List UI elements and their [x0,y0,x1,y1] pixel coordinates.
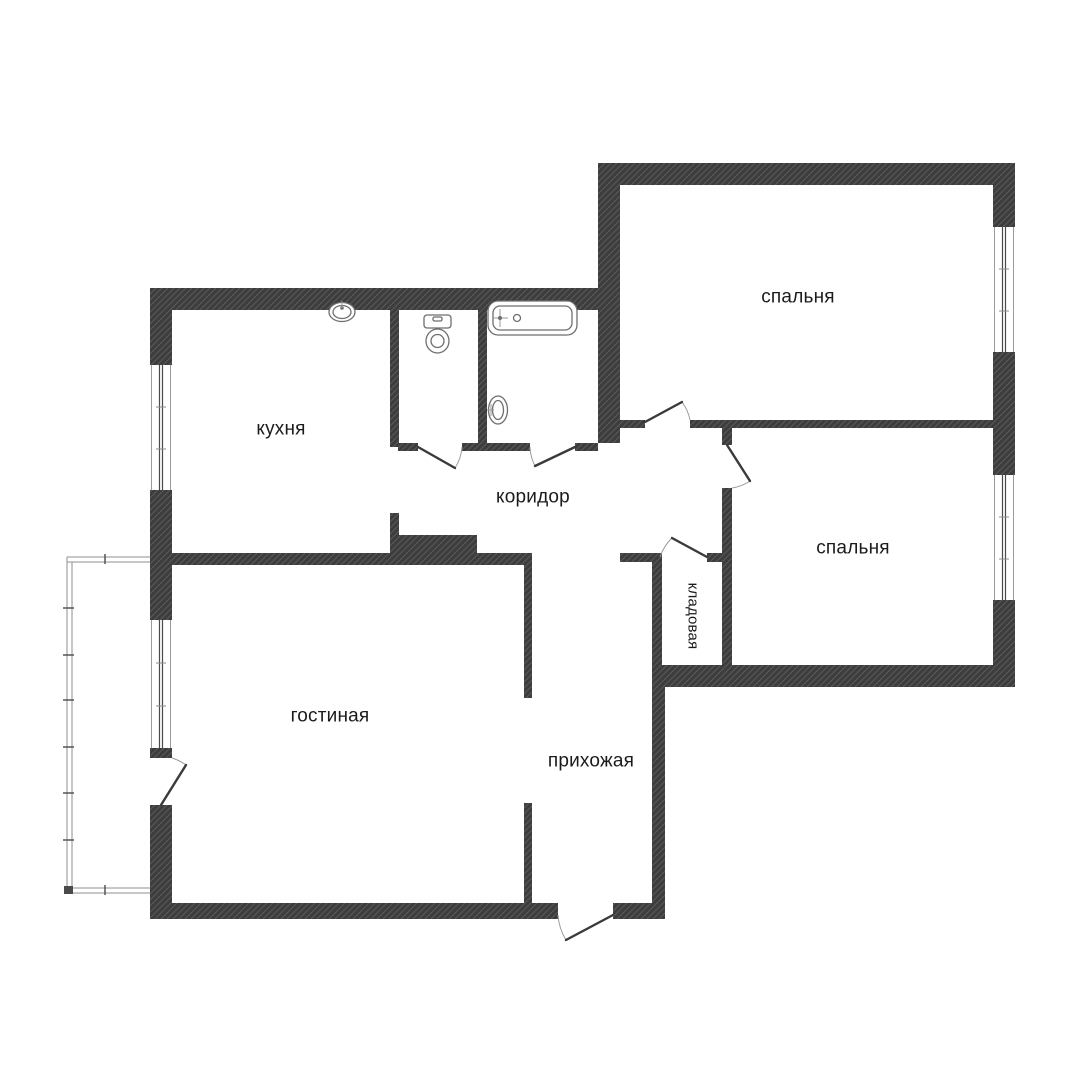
window-kitchen [152,365,171,490]
floor-plan: спальня спальня кухня коридор кладовая г… [0,0,1080,1080]
door-bedroom-top [645,402,690,422]
balcony-corner-post [64,886,73,894]
door-bathroom [530,447,575,466]
door-balcony [161,758,186,805]
door-bedroom-right [727,445,750,488]
door-pantry [660,538,707,557]
room-label-pantry: кладовая [685,583,702,650]
door-entrance [558,915,613,940]
fixtures [329,301,577,424]
room-labels: спальня спальня кухня коридор кладовая г… [256,287,889,772]
balcony [63,554,150,895]
window-bedroom-top [995,227,1014,352]
room-label-corridor: коридор [496,487,570,508]
bathtub-icon [488,301,577,335]
room-label-bedroom-right: спальня [816,538,890,559]
room-label-hallway: прихожая [548,751,634,772]
toilet-icon [424,315,451,353]
room-hallway [532,565,652,903]
room-label-bedroom-top: спальня [761,287,835,308]
window-living-room [152,620,171,748]
wash-basin-icon [487,396,508,424]
door-wc [418,447,462,468]
floor-plan-page: спальня спальня кухня коридор кладовая г… [0,0,1080,1080]
room-living-room [172,565,524,903]
room-label-kitchen: кухня [256,419,305,440]
window-bedroom-right [995,475,1014,600]
room-label-living-room: гостиная [291,706,370,727]
